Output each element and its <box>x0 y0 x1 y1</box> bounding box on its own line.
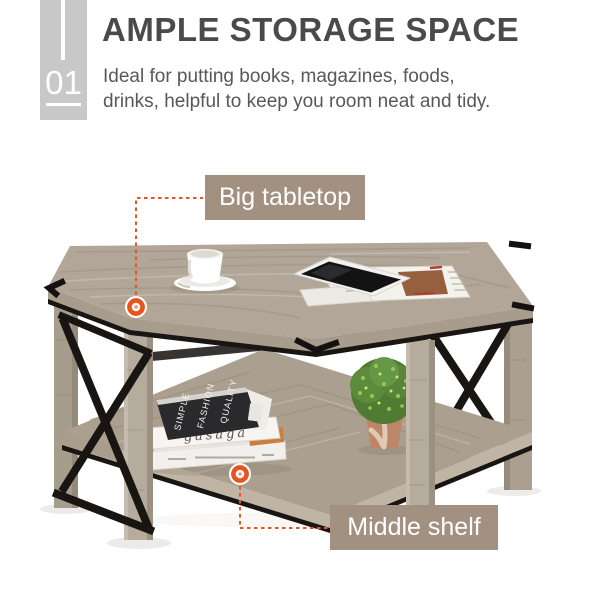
callout-label-big-tabletop: Big tabletop <box>205 175 365 220</box>
badge-number: 01 <box>40 66 87 100</box>
target-dot-shelf-icon <box>229 463 251 485</box>
target-dot-tabletop-icon <box>125 296 147 318</box>
badge-tick-line <box>61 0 65 60</box>
page-description: Ideal for putting books, magazines, food… <box>103 64 515 114</box>
number-badge: 01 <box>40 0 87 120</box>
callout-label-middle-shelf: Middle shelf <box>330 505 498 550</box>
product-feature-card: 01 AMPLE STORAGE SPACE Ideal for putting… <box>0 0 600 600</box>
badge-underline <box>46 103 81 106</box>
page-title: AMPLE STORAGE SPACE <box>102 12 582 48</box>
